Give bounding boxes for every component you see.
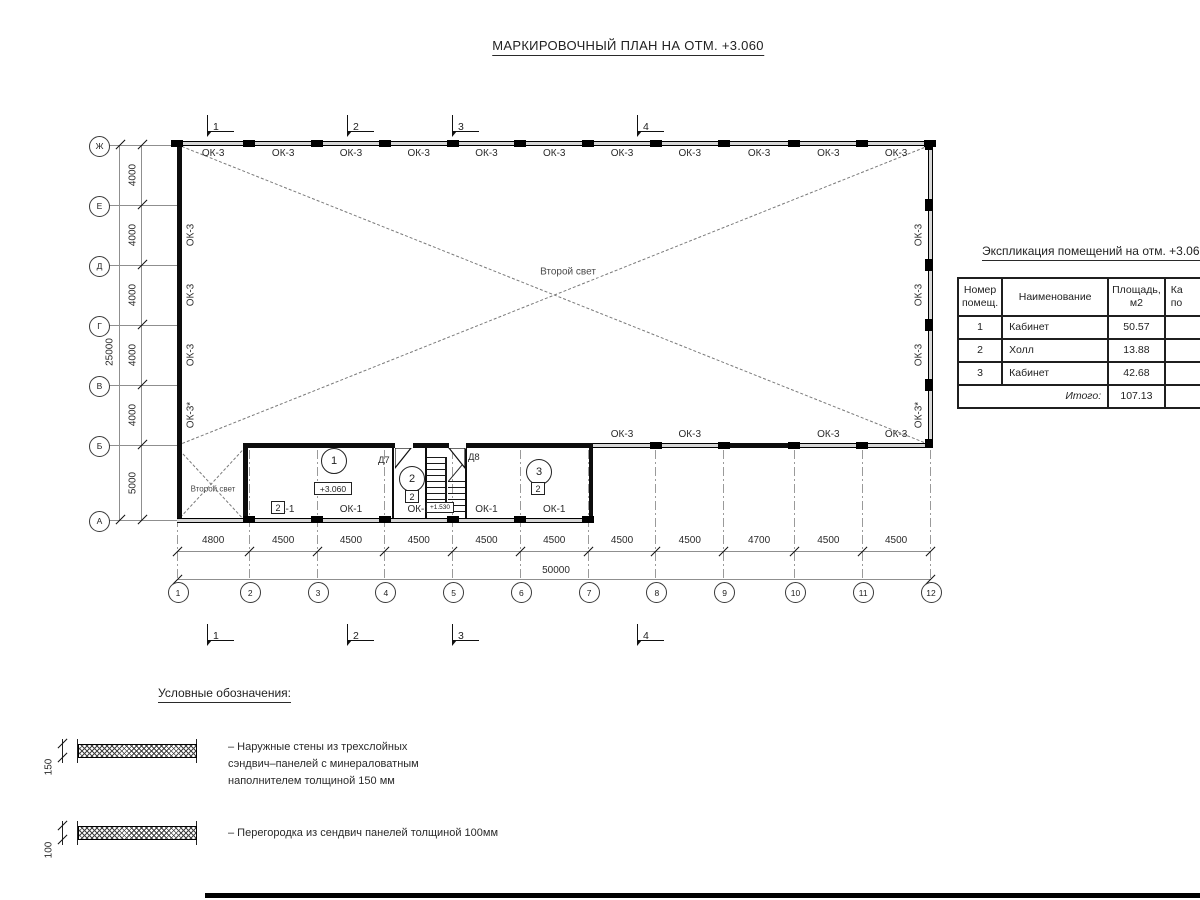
dim-label-left: 4000 bbox=[128, 404, 139, 426]
wall-pier bbox=[582, 140, 594, 147]
axis-circle-col: 3 bbox=[308, 582, 329, 603]
section-marker-label: 4 bbox=[643, 630, 649, 642]
wall-pier bbox=[788, 442, 800, 449]
section-marker-label: 1 bbox=[213, 121, 219, 133]
dim-label-left: 5000 bbox=[128, 471, 139, 493]
wall-pier bbox=[925, 319, 933, 331]
block-wall-left bbox=[243, 443, 248, 523]
legend-item-text: – Перегородка из сендвич панелей толщино… bbox=[228, 827, 498, 839]
window-label-right: ОК-3 bbox=[914, 224, 925, 247]
window-label-bwall: ОК-3 bbox=[611, 429, 634, 440]
window-label-top: ОК-3 bbox=[407, 148, 430, 159]
axis-circle-col: 12 bbox=[921, 582, 942, 603]
cell-name: Холл bbox=[1002, 339, 1108, 362]
window-label-right: ОК-3 bbox=[914, 344, 925, 367]
dim-label: 4500 bbox=[679, 535, 701, 546]
window-label-left: ОК-3 bbox=[186, 284, 197, 307]
window-label-left: ОК-3 bbox=[186, 344, 197, 367]
window-label-top: ОК-3 bbox=[340, 148, 363, 159]
window-label-ok1: ОК-1 bbox=[543, 504, 566, 515]
section-marker: 2 bbox=[347, 624, 374, 641]
legend-item-text: сэндвич–панелей с минераловатным bbox=[228, 758, 419, 770]
wall-solid-segment bbox=[724, 443, 795, 448]
dim-line-total bbox=[177, 579, 931, 580]
section-marker: 2 bbox=[347, 115, 374, 132]
axis-circle-row: Г bbox=[89, 316, 110, 337]
dim-line-left-total bbox=[119, 145, 120, 520]
section-marker: 4 bbox=[637, 624, 664, 641]
window-label-ok1: ОК-1 bbox=[475, 504, 498, 515]
cell-name: Кабинет bbox=[1002, 316, 1108, 339]
total-value: 107.13 bbox=[1108, 385, 1165, 408]
wall-pier bbox=[447, 516, 459, 523]
cell-category bbox=[1165, 316, 1200, 339]
dim-label: 4500 bbox=[543, 535, 565, 546]
section-marker: 1 bbox=[207, 624, 234, 641]
table-row: 3 Кабинет 42.68 bbox=[958, 362, 1200, 385]
col-header-category: Капо bbox=[1165, 278, 1200, 316]
wall-pier bbox=[171, 140, 183, 147]
col-header-name: Наименование bbox=[1002, 278, 1108, 316]
wall-pier bbox=[447, 140, 459, 147]
room-schedule: Экспликация помещений на отм. +3.060 Ном… bbox=[957, 242, 1200, 409]
axis-circle-row: А bbox=[89, 511, 110, 532]
cell-area: 42.68 bbox=[1108, 362, 1165, 385]
axis-circle-row: Ж bbox=[89, 136, 110, 157]
stair-tread bbox=[448, 487, 465, 488]
axis-line-col bbox=[794, 450, 795, 581]
cell-number: 2 bbox=[958, 339, 1002, 362]
window-label-bwall: ОК-3 bbox=[885, 429, 908, 440]
table-total-row: Итого: 107.13 bbox=[958, 385, 1200, 408]
axis-circle-col: 1 bbox=[168, 582, 189, 603]
exterior-wall-top bbox=[177, 141, 933, 146]
wall-pier bbox=[311, 516, 323, 523]
second-light-label: Второй свет bbox=[537, 267, 599, 278]
axis-circle-row: Д bbox=[89, 256, 110, 277]
wall-pier bbox=[925, 259, 933, 271]
dim-label: 4500 bbox=[272, 535, 294, 546]
section-marker: 4 bbox=[637, 115, 664, 132]
cell-category bbox=[1165, 385, 1200, 408]
dim-line bbox=[177, 551, 931, 552]
dim-label: 4500 bbox=[340, 535, 362, 546]
section-marker-label: 2 bbox=[353, 630, 359, 642]
cell-number: 1 bbox=[958, 316, 1002, 339]
axis-circle-col: 10 bbox=[785, 582, 806, 603]
dim-label: 4500 bbox=[475, 535, 497, 546]
dim-label: 4500 bbox=[817, 535, 839, 546]
wall-pier bbox=[243, 516, 255, 523]
window-label-top: ОК-3 bbox=[543, 148, 566, 159]
col-header-area: Площадь,м2 bbox=[1108, 278, 1165, 316]
legend-item-text: – Наружные стены из трехслойных bbox=[228, 741, 407, 753]
stair-tread bbox=[427, 487, 445, 488]
axis-line-col bbox=[930, 450, 931, 581]
door-label: Д8 bbox=[468, 452, 480, 463]
axis-line-col bbox=[862, 450, 863, 581]
axis-line-col bbox=[655, 450, 656, 581]
room-number: 1 bbox=[321, 448, 347, 474]
section-marker: 3 bbox=[452, 115, 479, 132]
axis-circle-col: 4 bbox=[375, 582, 396, 603]
axis-circle-row: Е bbox=[89, 196, 110, 217]
door-swing-icon bbox=[448, 448, 466, 469]
wall-pier bbox=[718, 140, 730, 147]
room-schedule-table: Номерпомещ. Наименование Площадь,м2 Капо… bbox=[957, 277, 1200, 409]
section-marker-label: 1 bbox=[213, 630, 219, 642]
dim-label: 4800 bbox=[202, 535, 224, 546]
dim-label: 4500 bbox=[885, 535, 907, 546]
window-label-bwall: ОК-3 bbox=[679, 429, 702, 440]
stair-elevation-mark: +1.530 bbox=[426, 502, 454, 513]
table-row: 1 Кабинет 50.57 bbox=[958, 316, 1200, 339]
wall-pier bbox=[379, 516, 391, 523]
legend-dim-label: 100 bbox=[44, 842, 55, 859]
window-label-top: ОК-3 bbox=[885, 148, 908, 159]
dim-label-left: 4000 bbox=[128, 224, 139, 246]
section-marker-label: 3 bbox=[458, 121, 464, 133]
sheet-frame-bottom bbox=[205, 893, 1200, 898]
door-label: Д7 bbox=[378, 455, 390, 466]
dim-label-left: 4000 bbox=[128, 344, 139, 366]
wall-pier bbox=[856, 140, 868, 147]
dim-total-label: 50000 bbox=[542, 565, 570, 576]
dim-label-left: 4000 bbox=[128, 164, 139, 186]
block-wall-top bbox=[243, 443, 593, 448]
window-label-top: ОК-3 bbox=[202, 148, 225, 159]
axis-circle-row: Б bbox=[89, 436, 110, 457]
wall-pier bbox=[925, 141, 933, 150]
dim-label-left: 4000 bbox=[128, 284, 139, 306]
section-marker-label: 2 bbox=[353, 121, 359, 133]
window-label-ok1: ОК-1 bbox=[340, 504, 363, 515]
stair-tread bbox=[427, 481, 445, 482]
axis-circle-row: В bbox=[89, 376, 110, 397]
stair-tread bbox=[448, 481, 465, 482]
dim-line-left bbox=[141, 145, 142, 520]
partition bbox=[392, 446, 394, 518]
table-row: 2 Холл 13.88 bbox=[958, 339, 1200, 362]
floor-plan: Д7 Д8 Второй свет Второй свет 1 2 3 2 2 … bbox=[0, 0, 1200, 900]
exterior-wall-left bbox=[177, 141, 182, 523]
cell-name: Кабинет bbox=[1002, 362, 1108, 385]
total-label: Итого: bbox=[958, 385, 1108, 408]
axis-circle-col: 11 bbox=[853, 582, 874, 603]
window-label-right: ОК-3 bbox=[914, 284, 925, 307]
elevation-mark: +3.060 bbox=[314, 482, 352, 495]
room-schedule-title: Экспликация помещений на отм. +3.060 bbox=[982, 244, 1200, 261]
window-label-top: ОК-3 bbox=[748, 148, 771, 159]
legend-wall-sample-100 bbox=[78, 826, 197, 840]
window-label-top: ОК-3 bbox=[475, 148, 498, 159]
wall-pier bbox=[925, 439, 933, 448]
wall-pier bbox=[582, 516, 594, 523]
window-label-top: ОК-3 bbox=[611, 148, 634, 159]
room-category-tag: 2 bbox=[531, 482, 545, 495]
stair-tread bbox=[427, 457, 445, 458]
axis-line-col bbox=[723, 450, 724, 581]
wall-pier bbox=[925, 199, 933, 211]
axis-circle-col: 8 bbox=[646, 582, 667, 603]
room-category-tag: 2 bbox=[271, 501, 285, 514]
axis-circle-col: 7 bbox=[579, 582, 600, 603]
section-marker: 3 bbox=[452, 624, 479, 641]
legend-title: Условные обозначения: bbox=[158, 686, 291, 703]
window-label-left: ОК-3* bbox=[186, 402, 197, 428]
cell-area: 13.88 bbox=[1108, 339, 1165, 362]
window-label-top: ОК-3 bbox=[679, 148, 702, 159]
stair-tread bbox=[448, 493, 465, 494]
wall-pier bbox=[718, 442, 730, 449]
wall-pier bbox=[514, 140, 526, 147]
wall-pier bbox=[925, 379, 933, 391]
dim-total-label-left: 25000 bbox=[105, 338, 116, 366]
legend-wall-sample-150 bbox=[78, 744, 197, 758]
stair-tread bbox=[427, 469, 445, 470]
stair-tread bbox=[427, 475, 445, 476]
stair-tread bbox=[448, 499, 465, 500]
cell-category bbox=[1165, 339, 1200, 362]
axis-circle-col: 9 bbox=[714, 582, 735, 603]
wall-pier bbox=[856, 442, 868, 449]
window-label-left: ОК-3 bbox=[186, 224, 197, 247]
wall-pier bbox=[379, 140, 391, 147]
dim-label: 4500 bbox=[611, 535, 633, 546]
wall-pier bbox=[650, 442, 662, 449]
section-marker: 1 bbox=[207, 115, 234, 132]
dim-label: 4500 bbox=[408, 535, 430, 546]
legend-item-text: наполнителем толщиной 150 мм bbox=[228, 775, 395, 787]
wall-pier bbox=[243, 140, 255, 147]
section-marker-label: 4 bbox=[643, 121, 649, 133]
sheet: МАРКИРОВОЧНЫЙ ПЛАН НА ОТМ. +3.060 Д7 Д8 bbox=[0, 0, 1200, 900]
cell-number: 3 bbox=[958, 362, 1002, 385]
legend-dim-label: 150 bbox=[44, 759, 55, 776]
axis-circle-col: 6 bbox=[511, 582, 532, 603]
second-light-label: Второй свет bbox=[188, 485, 239, 494]
stair-tread bbox=[427, 499, 445, 500]
axis-circle-col: 5 bbox=[443, 582, 464, 603]
dim-label: 4700 bbox=[748, 535, 770, 546]
axis-circle-col: 2 bbox=[240, 582, 261, 603]
room-category-tag: 2 bbox=[405, 490, 419, 503]
stair-tread bbox=[427, 463, 445, 464]
cell-area: 50.57 bbox=[1108, 316, 1165, 339]
window-label-top: ОК-3 bbox=[272, 148, 295, 159]
cell-category bbox=[1165, 362, 1200, 385]
section-marker-label: 3 bbox=[458, 630, 464, 642]
window-label-right: ОК-3* bbox=[914, 402, 925, 428]
window-label-top: ОК-3 bbox=[817, 148, 840, 159]
stair-tread bbox=[427, 493, 445, 494]
wall-pier bbox=[788, 140, 800, 147]
col-header-number: Номерпомещ. bbox=[958, 278, 1002, 316]
window-label-bwall: ОК-3 bbox=[817, 429, 840, 440]
wall-pier bbox=[514, 516, 526, 523]
wall-pier bbox=[311, 140, 323, 147]
exterior-wall-right bbox=[928, 141, 933, 448]
block-wall-right bbox=[589, 443, 593, 523]
wall-pier bbox=[650, 140, 662, 147]
room-number: 2 bbox=[399, 466, 425, 492]
